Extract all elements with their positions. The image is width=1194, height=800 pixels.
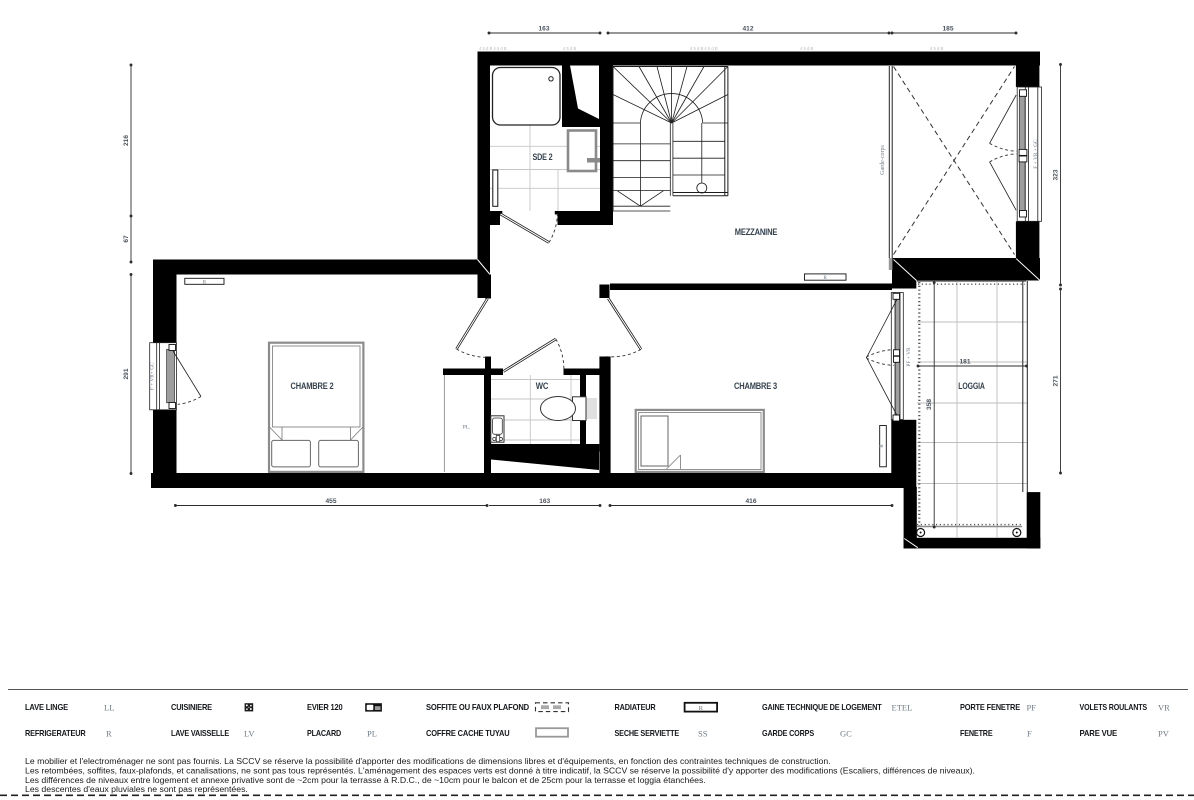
svg-text:MEZZANINE: MEZZANINE [735, 227, 778, 237]
svg-text:R: R [106, 729, 112, 739]
svg-text:F + VR+ GC: F + VR+ GC [150, 362, 156, 390]
svg-text:PF: PF [1027, 703, 1037, 713]
svg-text:181: 181 [959, 359, 970, 366]
svg-text:GARDE CORPS: GARDE CORPS [762, 728, 814, 738]
svg-text:CHAMBRE 3: CHAMBRE 3 [734, 381, 777, 391]
svg-text:CUISINIERE: CUISINIERE [171, 702, 212, 712]
svg-text:SDE 2: SDE 2 [533, 152, 553, 162]
svg-text:PV: PV [1158, 729, 1170, 739]
svg-text:Les descentes d'eaux pluviales: Les descentes d'eaux pluviales ne sont p… [25, 784, 248, 794]
svg-text:RADIATEUR: RADIATEUR [615, 702, 656, 712]
svg-text:323: 323 [1053, 169, 1060, 180]
svg-text:4 5 d B 4 5 d B: 4 5 d B 4 5 d B [690, 46, 718, 51]
svg-text:PLACARD: PLACARD [307, 728, 341, 738]
svg-text:F: F [1027, 729, 1032, 739]
svg-text:358: 358 [926, 399, 933, 410]
svg-text:CHAMBRE 2: CHAMBRE 2 [291, 381, 334, 391]
svg-text:EVIER 120: EVIER 120 [307, 702, 343, 712]
svg-text:SOFFITE OU FAUX PLAFOND: SOFFITE OU FAUX PLAFOND [426, 702, 529, 712]
svg-text:PL.: PL. [463, 425, 471, 431]
svg-text:4 5 d B 4 5 d B: 4 5 d B 4 5 d B [479, 46, 507, 51]
svg-text:216: 216 [123, 135, 130, 146]
svg-text:PF + VR: PF + VR [906, 347, 912, 367]
svg-text:GC: GC [840, 729, 852, 739]
svg-text:LOGGIA: LOGGIA [958, 381, 985, 391]
svg-text:Garde-corps: Garde-corps [880, 145, 886, 175]
svg-text:SS: SS [698, 729, 708, 739]
svg-text:F + VR + GC: F + VR + GC [1033, 139, 1039, 169]
svg-text:4 5 d B: 4 5 d B [930, 46, 943, 51]
svg-text:GAINE TECHNIQUE DE LOGEMENT: GAINE TECHNIQUE DE LOGEMENT [762, 702, 882, 712]
svg-text:SECHE SERVIETTE: SECHE SERVIETTE [615, 728, 680, 738]
svg-text:LV: LV [244, 729, 255, 739]
svg-text:FENETRE: FENETRE [960, 728, 993, 738]
svg-text:4 5 d B: 4 5 d B [800, 46, 813, 51]
svg-text:ETEL: ETEL [892, 703, 913, 713]
svg-text:416: 416 [745, 498, 756, 505]
svg-text:163: 163 [539, 498, 550, 505]
svg-text:LAVE LINGE: LAVE LINGE [25, 702, 68, 712]
svg-text:PORTE FENETRE: PORTE FENETRE [960, 702, 1020, 712]
svg-text:185: 185 [942, 26, 953, 33]
svg-text:LAVE VAISSELLE: LAVE VAISSELLE [171, 728, 229, 738]
svg-text:VOLETS ROULANTS: VOLETS ROULANTS [1080, 702, 1148, 712]
svg-text:4 5 d B: 4 5 d B [563, 46, 576, 51]
svg-text:PL: PL [367, 729, 377, 739]
svg-text:R: R [699, 705, 704, 712]
svg-text:291: 291 [123, 368, 130, 379]
svg-text:PARE VUE: PARE VUE [1080, 728, 1118, 738]
svg-text:455: 455 [325, 498, 336, 505]
svg-text:67: 67 [123, 235, 130, 243]
svg-text:VR: VR [1158, 703, 1170, 713]
svg-text:REFRIGERATEUR: REFRIGERATEUR [25, 728, 86, 738]
svg-text:271: 271 [1053, 375, 1060, 386]
svg-text:WC: WC [536, 381, 549, 391]
svg-text:COFFRE CACHE TUYAU: COFFRE CACHE TUYAU [426, 728, 510, 738]
svg-text:412: 412 [742, 26, 753, 33]
svg-text:LL: LL [104, 703, 114, 713]
svg-text:163: 163 [538, 26, 549, 33]
